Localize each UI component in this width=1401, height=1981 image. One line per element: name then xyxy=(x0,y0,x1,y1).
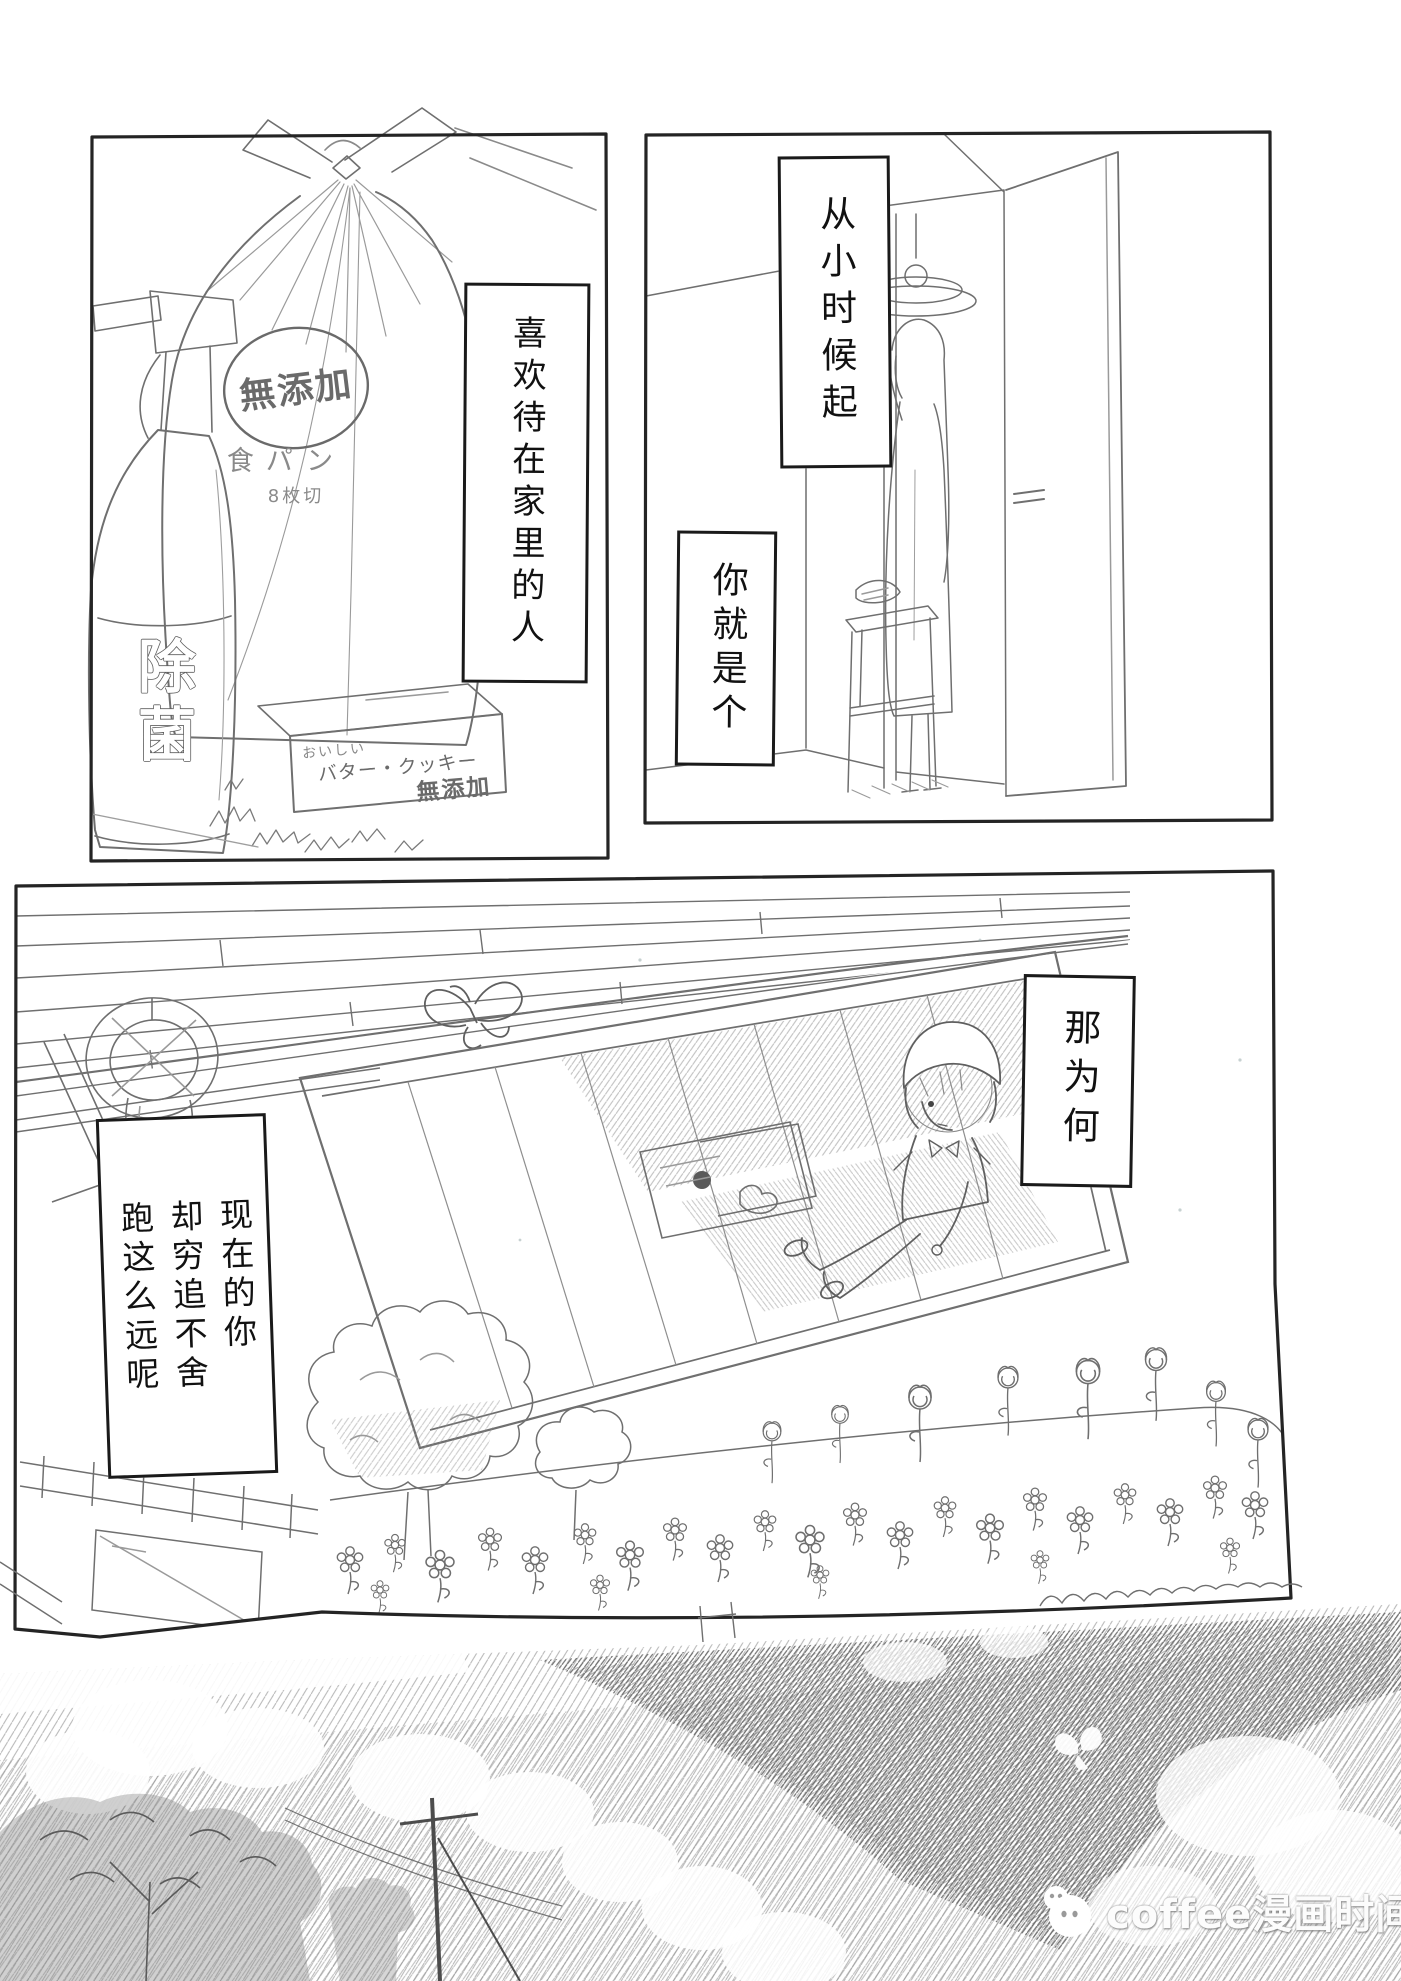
door-drawing xyxy=(1006,152,1126,796)
speech-bubble-stay-home: 喜欢待在家里的人 xyxy=(462,283,591,684)
cookie-box-line1-text: おいしい xyxy=(302,740,367,762)
chat-faces-icon xyxy=(1040,1884,1098,1938)
flower-bed-drawing xyxy=(330,1348,1290,1614)
bread-bag-badge-text: 無添加 xyxy=(237,363,355,418)
cookie-box-line3-text: 無添加 xyxy=(415,774,492,806)
speech-bubble-stay-home-text: 喜欢待在家里的人 xyxy=(500,315,551,651)
speech-bubble-then-why-text: 那为何 xyxy=(1050,1007,1107,1155)
speech-bubble-chasing-so-far: 现在的你 却穷追不舍 跑这么远呢 xyxy=(96,1113,278,1479)
herb-sprigs-drawing xyxy=(92,779,423,852)
speech-bubble-then-why: 那为何 xyxy=(1020,974,1136,1188)
speech-bubble-you-are: 你就是个 xyxy=(675,530,777,766)
speech-bubble-chasing-so-far-text: 现在的你 却穷追不舍 跑这么远呢 xyxy=(109,1196,264,1396)
speech-bubble-since-childhood-text: 从小时候起 xyxy=(808,194,862,429)
bread-bag-name-text: 食パン xyxy=(227,446,345,477)
bush-drawing xyxy=(307,1301,631,1560)
fence-drawing xyxy=(20,1456,318,1632)
watermark: coffee漫画时间 xyxy=(1040,1882,1401,1940)
watermark-text: coffee漫画时间 xyxy=(1106,1882,1401,1940)
chair-drawing xyxy=(846,580,938,792)
manga-artwork: 無添加 食パン 8枚切 除菌 おいしい バター・クッキー 無添加 xyxy=(0,0,1401,1981)
spray-bottle-label-text: 除菌 xyxy=(128,636,196,772)
speech-bubble-since-childhood: 从小时候起 xyxy=(778,156,893,469)
door-frame-drawing xyxy=(884,134,1006,796)
bread-bag-slices-text: 8枚切 xyxy=(268,486,324,507)
manga-page: 無添加 食パン 8枚切 除菌 おいしい バター・クッキー 無添加 xyxy=(0,0,1401,1981)
cookie-box-drawing: おいしい バター・クッキー 無添加 xyxy=(258,684,506,816)
speech-bubble-you-are-text: 你就是个 xyxy=(699,560,753,737)
